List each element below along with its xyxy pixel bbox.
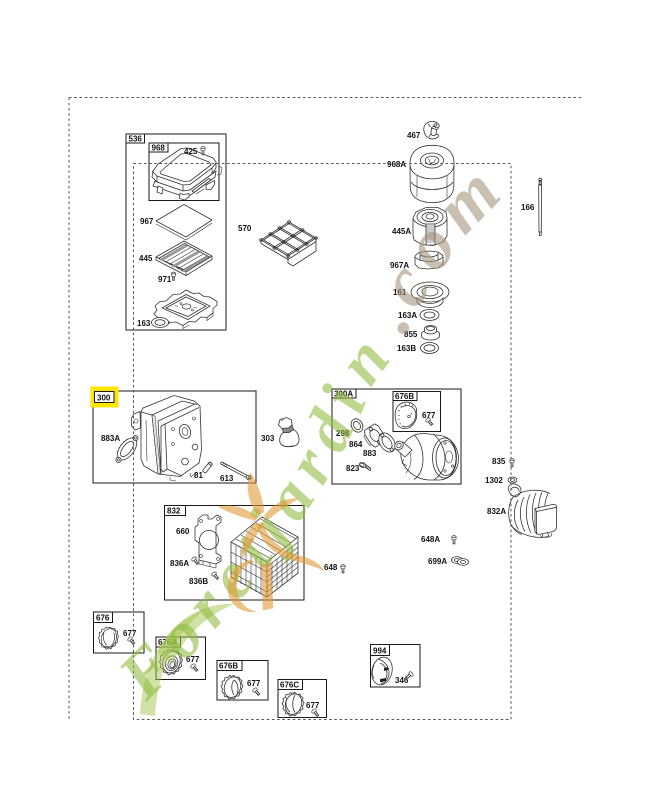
svg-text:425: 425 [184,147,198,156]
svg-text:166: 166 [521,203,535,212]
svg-text:81: 81 [194,471,203,480]
svg-text:971: 971 [158,275,172,284]
svg-text:883: 883 [363,449,377,458]
svg-text:676B: 676B [219,662,238,671]
svg-text:303: 303 [261,434,275,443]
svg-text:660: 660 [176,527,190,536]
svg-text:677: 677 [247,679,261,688]
svg-text:676: 676 [96,614,110,623]
svg-text:445: 445 [139,254,153,263]
svg-text:613: 613 [220,474,234,483]
svg-text:676C: 676C [280,681,299,690]
svg-text:968A: 968A [387,160,406,169]
svg-text:699A: 699A [428,557,447,566]
svg-text:967: 967 [140,217,154,226]
svg-text:832: 832 [167,507,181,516]
svg-text:300: 300 [97,394,111,403]
svg-text:836A: 836A [170,559,189,568]
svg-text:835: 835 [492,457,506,466]
svg-text:1302: 1302 [485,476,503,485]
svg-text:676B: 676B [395,392,414,401]
svg-text:968: 968 [152,144,166,153]
svg-text:648: 648 [324,563,338,572]
svg-text:832A: 832A [487,507,506,516]
svg-text:536: 536 [129,135,143,144]
svg-text:570: 570 [238,224,252,233]
svg-text:163: 163 [137,319,151,328]
svg-text:994: 994 [373,647,387,656]
svg-text:677: 677 [306,701,320,710]
svg-text:648A: 648A [421,535,440,544]
svg-text:467: 467 [407,131,421,140]
svg-text:883A: 883A [101,434,120,443]
